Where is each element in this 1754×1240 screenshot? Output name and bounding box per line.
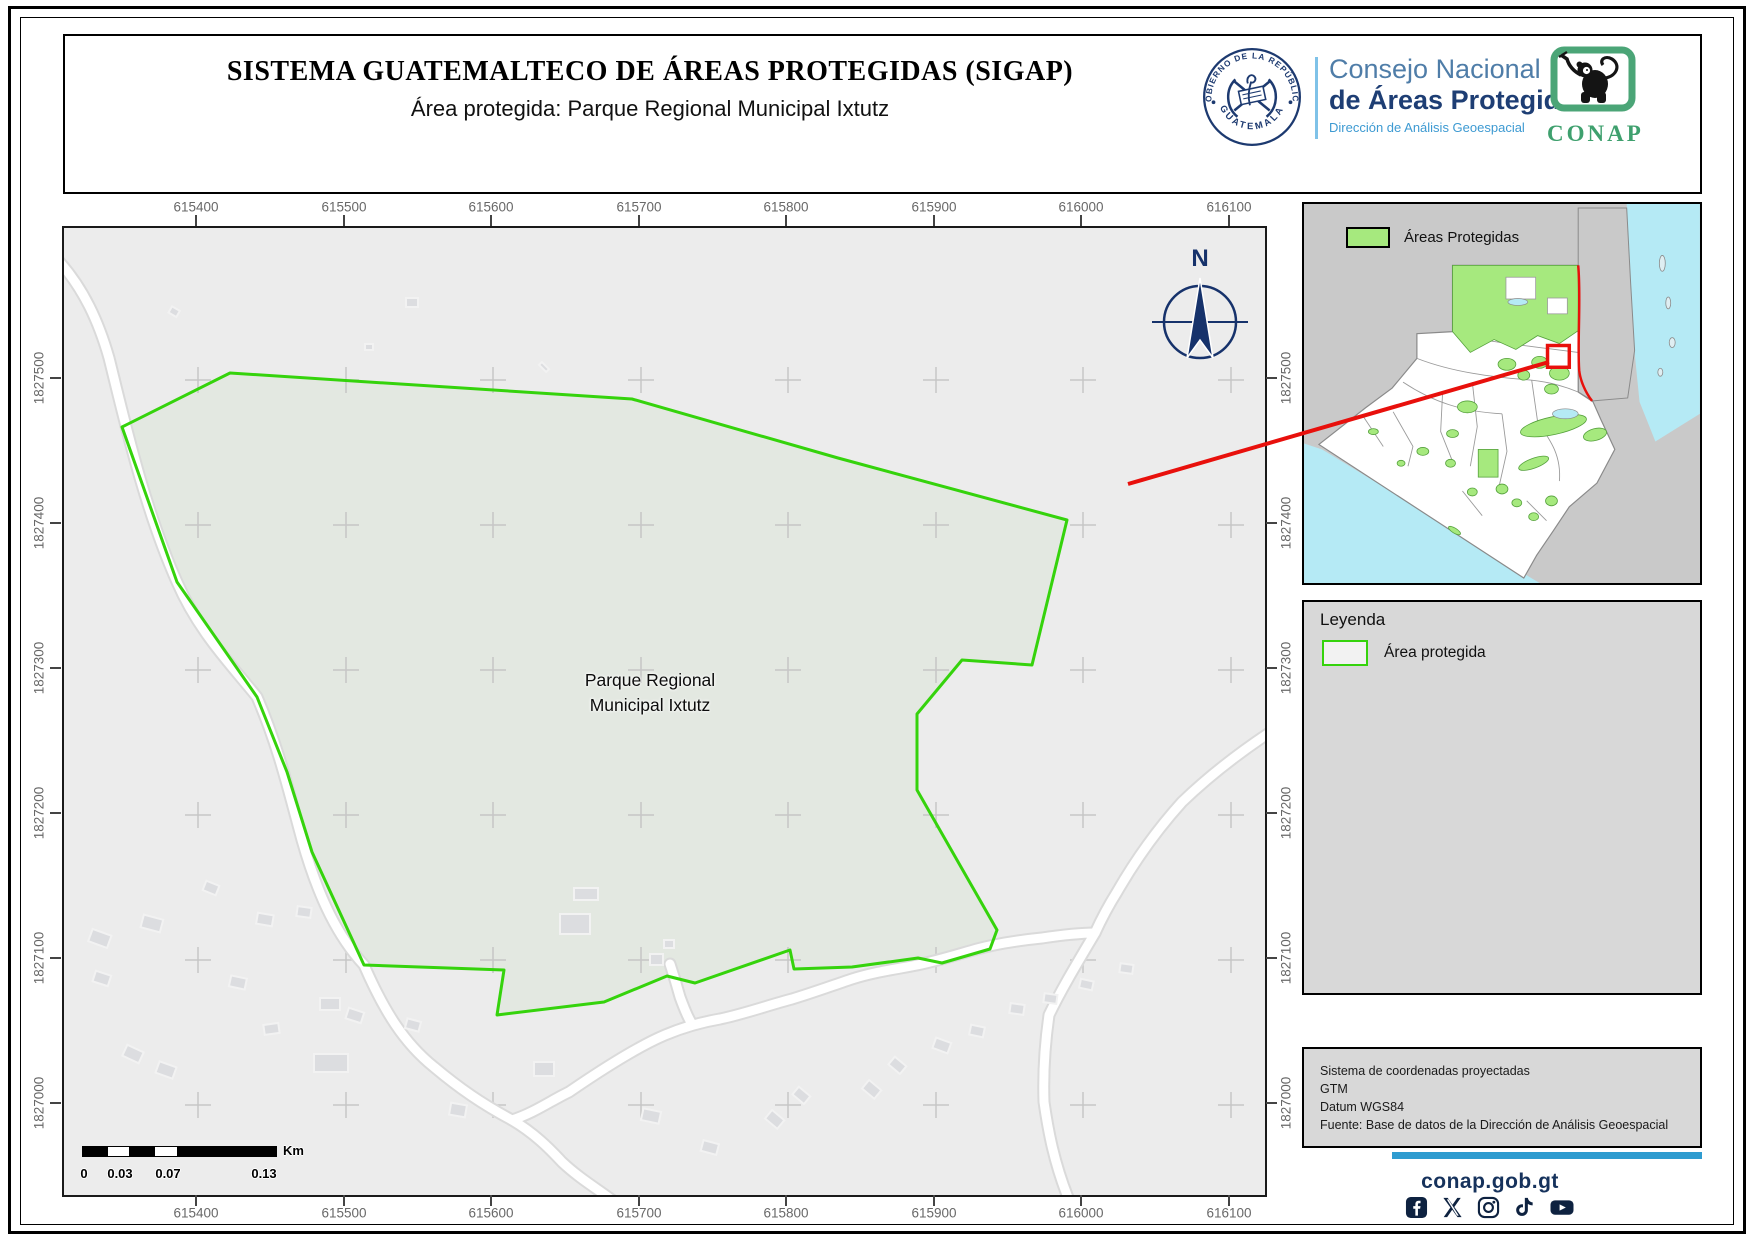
axis-tick <box>1228 1195 1230 1206</box>
x-axis-label-top: 616000 <box>1058 200 1103 215</box>
y-axis-label-right: 1827300 <box>1279 642 1294 695</box>
scale-tick-013: 0.13 <box>251 1166 276 1181</box>
instagram-icon <box>1477 1196 1500 1219</box>
axis-tick <box>1228 215 1230 226</box>
x-axis-label-top: 615700 <box>616 200 661 215</box>
axis-tick <box>50 957 61 959</box>
inset-graphics <box>1304 204 1700 583</box>
axis-tick <box>638 215 640 226</box>
y-axis-label-left: 1827300 <box>32 642 47 695</box>
north-arrow: N <box>1144 236 1256 388</box>
park-label-line2: Municipal Ixtutz <box>500 693 800 718</box>
header: SISTEMA GUATEMALTECO DE ÁREAS PROTEGIDAS… <box>63 34 1702 194</box>
y-axis-label-left: 1827400 <box>32 497 47 550</box>
scale-tick-003: 0.03 <box>107 1166 132 1181</box>
logo-separator <box>1315 57 1318 139</box>
axis-tick <box>50 667 61 669</box>
youtube-icon <box>1549 1196 1575 1219</box>
lake-peten-itza <box>1508 299 1528 306</box>
page-title: SISTEMA GUATEMALTECO DE ÁREAS PROTEGIDAS… <box>135 56 1165 88</box>
axis-tick <box>490 1195 492 1206</box>
legend-panel: Leyenda Área protegida <box>1302 600 1702 995</box>
map-sheet: SISTEMA GUATEMALTECO DE ÁREAS PROTEGIDAS… <box>0 0 1754 1240</box>
y-axis-label-left: 1827000 <box>32 1077 47 1130</box>
axis-tick <box>50 522 61 524</box>
y-axis-label-right: 1827100 <box>1279 932 1294 985</box>
axis-tick <box>785 215 787 226</box>
y-axis-label-right: 1827500 <box>1279 352 1294 405</box>
legend-swatch-protected-area <box>1322 640 1368 666</box>
info-line-3: Datum WGS84 <box>1320 1098 1684 1116</box>
x-axis-label-bottom: 615700 <box>616 1206 661 1221</box>
footer-accent-bar <box>1392 1152 1702 1159</box>
y-axis-label-right: 1827400 <box>1279 497 1294 550</box>
x-axis-label-bottom: 616100 <box>1206 1206 1251 1221</box>
legend-item-label: Área protegida <box>1384 644 1486 662</box>
axis-tick <box>50 812 61 814</box>
legend-title: Leyenda <box>1320 610 1385 630</box>
axis-tick <box>785 1195 787 1206</box>
x-axis-label-top: 615500 <box>321 200 366 215</box>
main-map: Parque Regional Municipal Ixtutz N Km 0 … <box>62 226 1267 1197</box>
x-axis-label-top: 615800 <box>763 200 808 215</box>
x-axis-label-bottom: 615600 <box>468 1206 513 1221</box>
x-axis-label-top: 615600 <box>468 200 513 215</box>
x-axis-label-top: 615400 <box>173 200 218 215</box>
scale-unit: Km <box>283 1143 304 1158</box>
axis-tick <box>1266 812 1277 814</box>
axis-tick <box>638 1195 640 1206</box>
x-axis-label-bottom: 615800 <box>763 1206 808 1221</box>
x-icon <box>1441 1196 1464 1219</box>
scale-tick-007: 0.07 <box>155 1166 180 1181</box>
axis-tick <box>343 215 345 226</box>
info-line-2: GTM <box>1320 1080 1684 1098</box>
axis-tick <box>195 215 197 226</box>
axis-tick <box>1080 1195 1082 1206</box>
x-axis-label-bottom: 615900 <box>911 1206 956 1221</box>
axis-tick <box>1266 522 1277 524</box>
lake-izabal <box>1552 409 1578 419</box>
y-axis-label-left: 1827100 <box>32 932 47 985</box>
north-label: N <box>1191 245 1208 272</box>
website-url: conap.gob.gt <box>1340 1170 1640 1194</box>
info-line-1: Sistema de coordenadas proyectadas <box>1320 1062 1684 1080</box>
page-subtitle: Área protegida: Parque Regional Municipa… <box>135 96 1165 122</box>
x-axis-label-bottom: 616000 <box>1058 1206 1103 1221</box>
axis-tick <box>933 1195 935 1206</box>
y-axis-label-right: 1827200 <box>1279 787 1294 840</box>
axis-tick <box>50 1102 61 1104</box>
conap-logo: CONAP <box>1547 44 1639 152</box>
axis-tick <box>933 215 935 226</box>
y-axis-label-left: 1827200 <box>32 787 47 840</box>
axis-tick <box>490 215 492 226</box>
axis-tick <box>50 377 61 379</box>
y-axis-label-left: 1827500 <box>32 352 47 405</box>
info-panel: Sistema de coordenadas proyectadas GTM D… <box>1302 1047 1702 1148</box>
belize <box>1578 208 1634 401</box>
axis-tick <box>1266 957 1277 959</box>
x-axis-label-bottom: 615400 <box>173 1206 218 1221</box>
government-seal: GOBIERNO DE LA REPÚBLICA GUATEMALA <box>1200 45 1304 149</box>
x-axis-label-top: 615900 <box>911 200 956 215</box>
axis-tick <box>343 1195 345 1206</box>
axis-tick <box>1266 1102 1277 1104</box>
social-icons <box>1340 1196 1640 1219</box>
conap-monkey-icon <box>1547 44 1639 118</box>
inset-legend-swatch <box>1346 227 1390 248</box>
scale-bar: Km 0 0.03 0.07 0.13 <box>80 1140 360 1197</box>
x-axis-label-top: 616100 <box>1206 200 1251 215</box>
axis-tick <box>1266 377 1277 379</box>
axis-tick <box>1266 667 1277 669</box>
info-line-4: Fuente: Base de datos de la Dirección de… <box>1320 1116 1684 1134</box>
tiktok-icon <box>1513 1196 1536 1219</box>
axis-tick <box>195 1195 197 1206</box>
axis-tick <box>1080 215 1082 226</box>
y-axis-label-right: 1827000 <box>1279 1077 1294 1130</box>
conap-logo-text: CONAP <box>1547 121 1639 147</box>
inset-map <box>1302 202 1702 585</box>
park-label: Parque Regional Municipal Ixtutz <box>500 668 800 718</box>
park-label-line1: Parque Regional <box>500 668 800 693</box>
inset-legend-label: Áreas Protegidas <box>1404 229 1519 246</box>
facebook-icon <box>1405 1196 1428 1219</box>
x-axis-label-bottom: 615500 <box>321 1206 366 1221</box>
scale-tick-0: 0 <box>80 1166 87 1181</box>
